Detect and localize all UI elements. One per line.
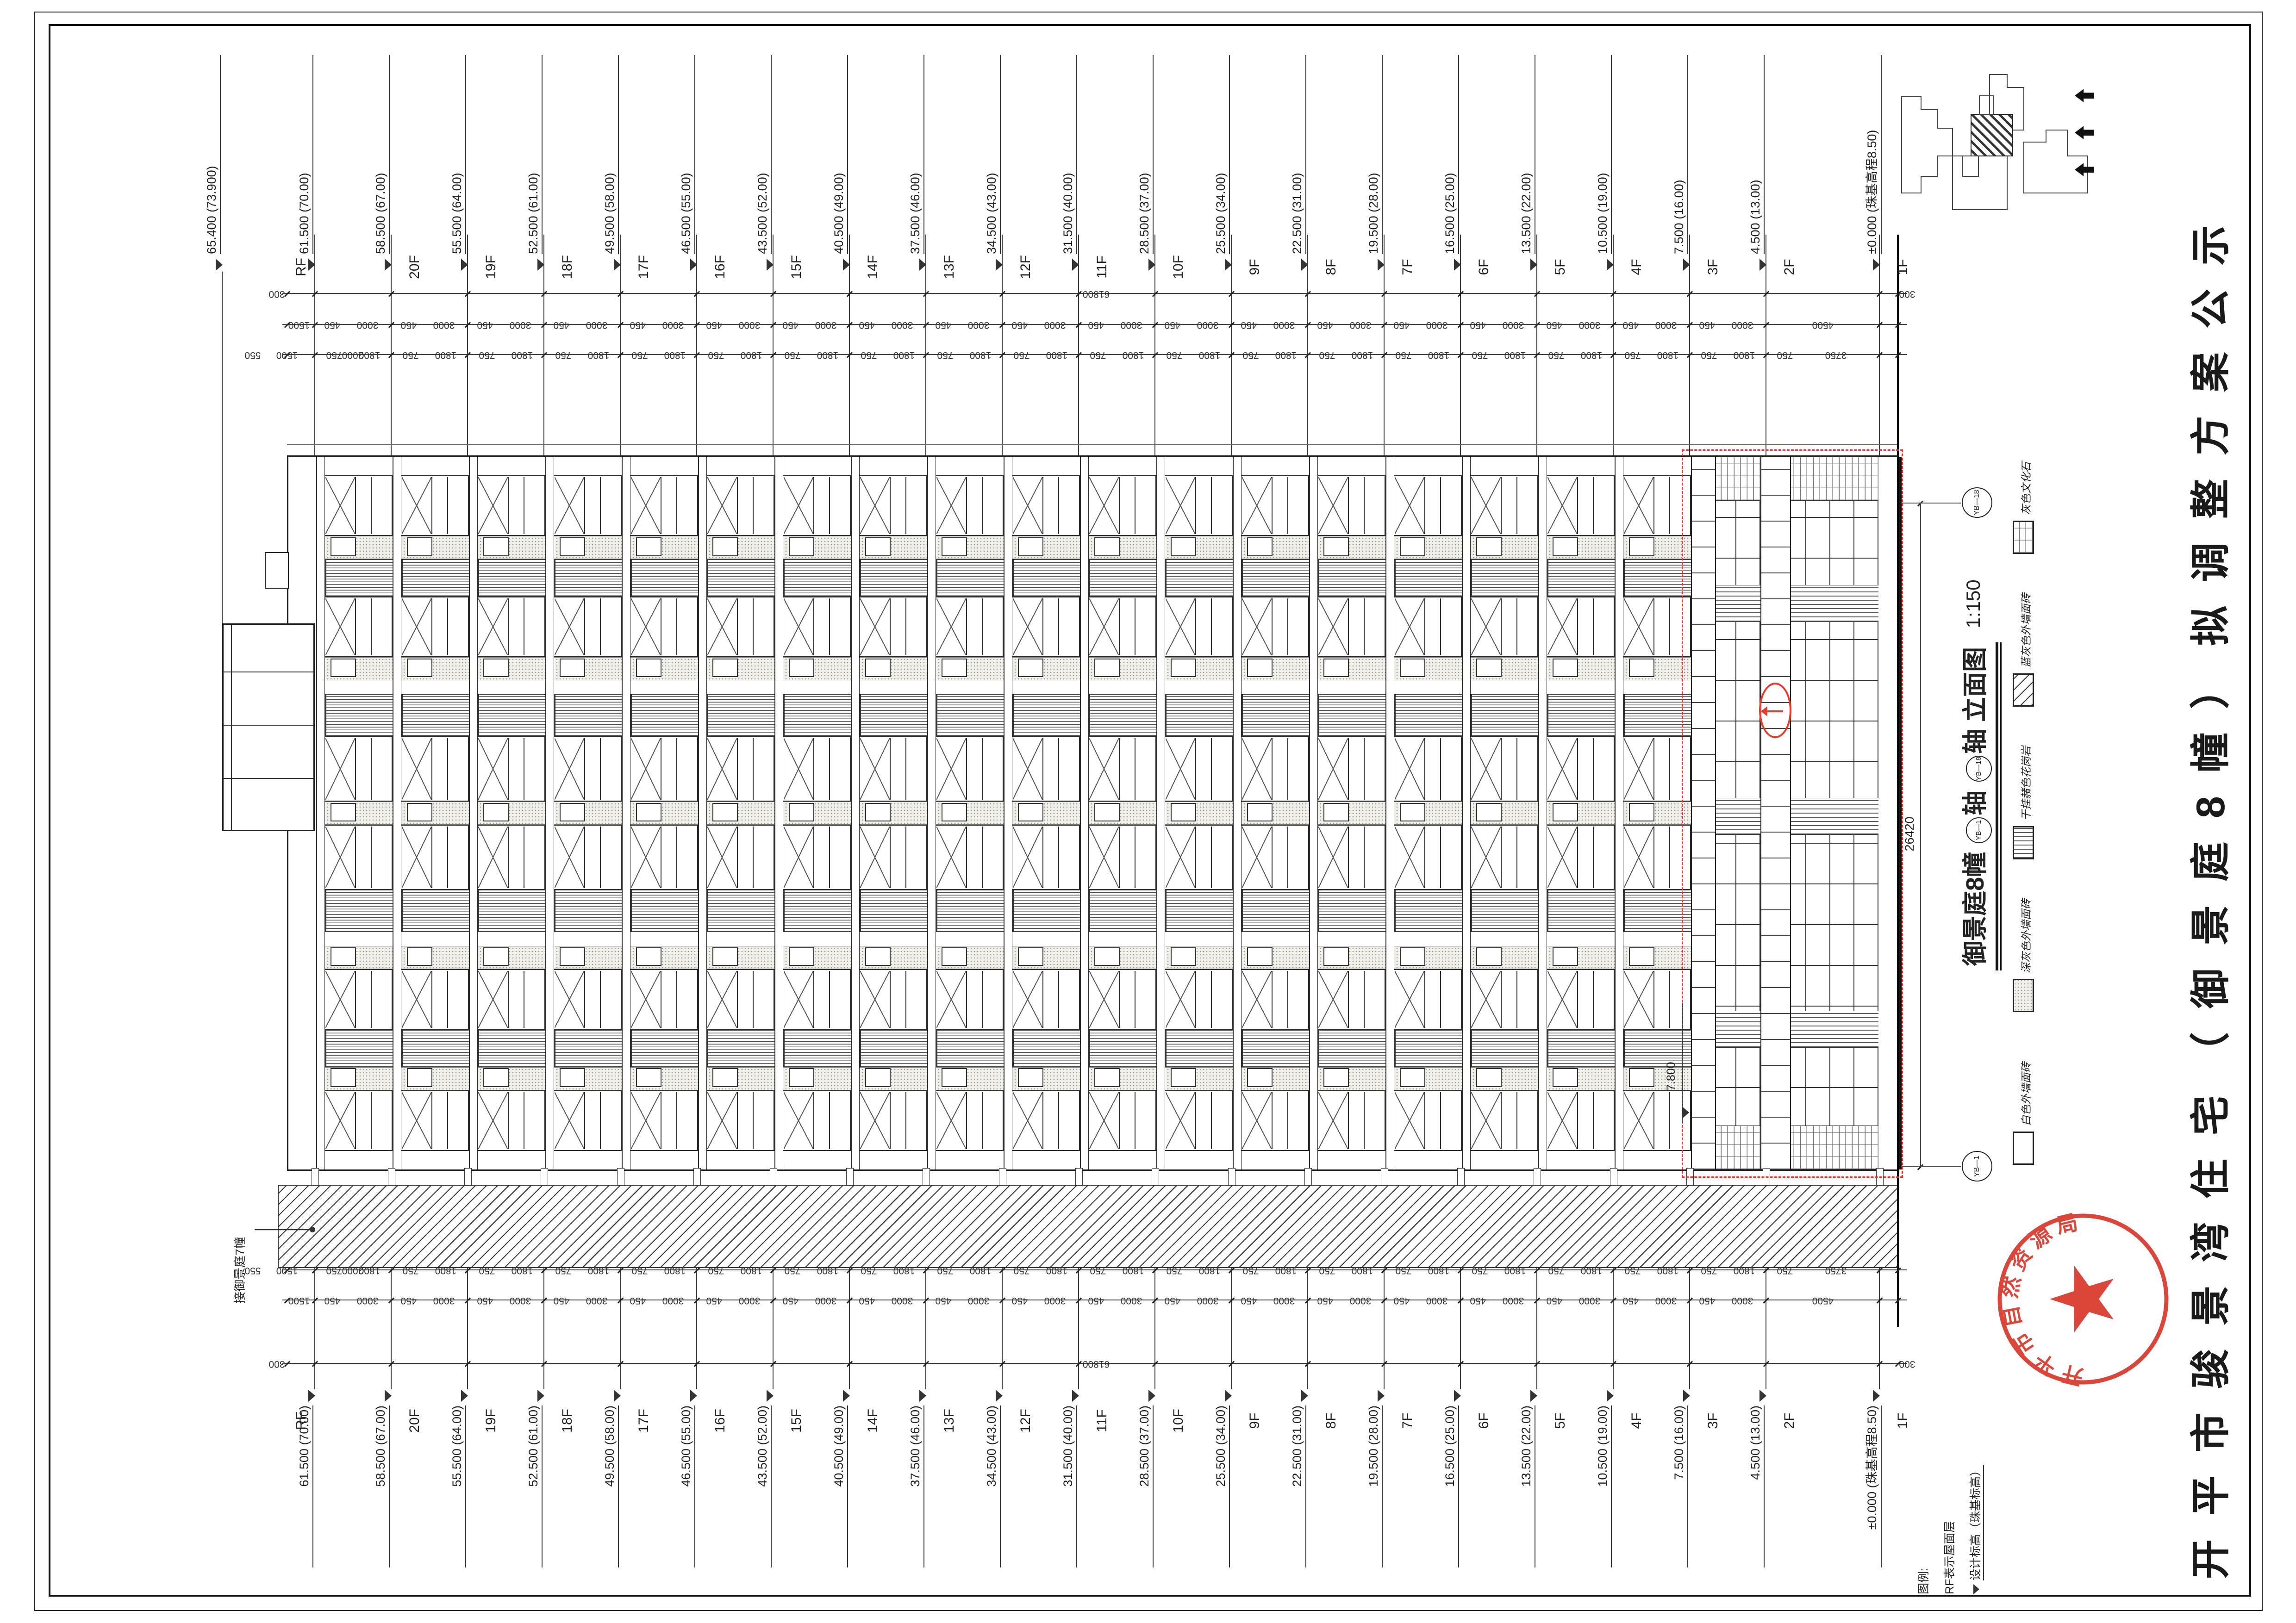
- dim-label: 450: [698, 319, 730, 330]
- elevation-flag: 34.500 (43.00): [985, 1405, 1001, 1567]
- balcony-rail: [476, 694, 545, 736]
- window-sash-x: [1089, 738, 1120, 800]
- floor-label: 14F: [865, 1400, 881, 1442]
- floor-strip: [1309, 457, 1385, 1169]
- dim-label: 3750: [1820, 349, 1852, 361]
- small-window: [789, 947, 814, 966]
- window: [629, 825, 698, 890]
- dim-label: 750: [1235, 1265, 1267, 1276]
- dim-label: 450: [469, 1295, 501, 1306]
- tile-pier: [629, 1067, 698, 1090]
- window-sash-x: [402, 971, 432, 1028]
- window-sash-x: [1013, 1092, 1043, 1149]
- window: [1164, 736, 1233, 802]
- dim-label: 1800: [735, 349, 767, 361]
- dim-label: 750: [1540, 1265, 1572, 1276]
- window: [1469, 1090, 1538, 1151]
- axis-circle-start: YB—1: [1966, 817, 1992, 843]
- level-triangle-icon: [216, 259, 223, 271]
- window: [1316, 475, 1385, 536]
- dim-label: 750: [700, 349, 732, 361]
- dim-label: 1800: [659, 349, 691, 361]
- scanned-drawing-page: 开平市骏景湾住宅（御景庭8幢）拟调整方案公示 61.500 (70.00)61.…: [0, 0, 2296, 1623]
- small-window: [1247, 1068, 1273, 1087]
- window: [1393, 1090, 1462, 1151]
- machine-level-line: [222, 272, 223, 623]
- small-window: [407, 947, 432, 966]
- window: [324, 969, 393, 1030]
- dim-label: 3000: [1268, 319, 1300, 330]
- adjacent-building-band: [278, 1185, 1898, 1268]
- wall: [1622, 1151, 1691, 1169]
- floor-label: 17F: [636, 1400, 652, 1442]
- window-mullion: [1440, 971, 1441, 1028]
- small-window: [1476, 947, 1502, 966]
- window-mullion: [753, 1092, 754, 1149]
- window-mullion: [1669, 827, 1670, 888]
- wall: [1546, 680, 1615, 694]
- dim-label: 1800: [582, 349, 615, 361]
- small-window: [1323, 537, 1349, 556]
- legend-label: 深灰色外墙面砖: [2017, 899, 2033, 973]
- small-window: [942, 947, 967, 966]
- window-sash-x: [1089, 827, 1120, 888]
- dim-label: 1800: [430, 1265, 462, 1276]
- window-sash-x: [707, 1092, 738, 1149]
- window-sash-x: [1166, 971, 1196, 1028]
- window-mullion: [524, 827, 524, 888]
- floor-strip: [1385, 457, 1462, 1169]
- wall: [1546, 1151, 1615, 1169]
- balcony-rail: [1087, 1030, 1156, 1067]
- floor-strip: [393, 457, 469, 1169]
- window-sash-x: [1624, 1092, 1654, 1149]
- window-sash-x: [555, 827, 585, 888]
- window-sash-x: [1318, 738, 1349, 800]
- tile-pier: [1393, 536, 1462, 559]
- window-sash-x: [1547, 1092, 1578, 1149]
- balcony-rail: [553, 559, 622, 597]
- small-window: [1018, 803, 1043, 822]
- tile-pier: [1393, 802, 1462, 825]
- podium-level-triangle-icon: [1682, 1107, 1689, 1119]
- window: [476, 1090, 545, 1151]
- floor-label: 13F: [942, 246, 957, 288]
- window: [705, 597, 774, 657]
- small-window: [483, 659, 509, 678]
- dim-label: 3000: [580, 319, 613, 330]
- window-sash-x: [478, 1092, 509, 1149]
- window-mullion: [1058, 971, 1059, 1028]
- window: [1469, 825, 1538, 890]
- window-sash-x: [402, 1092, 432, 1149]
- legend-label: 灰色文化石: [2017, 462, 2033, 515]
- wall: [1393, 932, 1462, 946]
- window: [476, 825, 545, 890]
- window: [705, 969, 774, 1030]
- dim-label: 3000: [962, 319, 995, 330]
- drawing-title-suffix: 立面图: [1961, 647, 1989, 722]
- wall: [1240, 680, 1309, 694]
- window: [553, 825, 622, 890]
- elevation-flag: 28.500 (37.00): [1137, 55, 1154, 254]
- dim-label: 3000: [1726, 319, 1759, 330]
- window-sash-x: [707, 971, 738, 1028]
- window-mullion: [1440, 477, 1441, 534]
- dim-label: 750: [700, 1265, 732, 1276]
- window-mullion: [753, 477, 754, 534]
- adjacent-leader-line: [241, 1183, 343, 1304]
- window-sash-x: [1089, 477, 1120, 534]
- tile-pier: [629, 657, 698, 680]
- dim-label: 450: [545, 1295, 578, 1306]
- window: [705, 736, 774, 802]
- balcony-rail: [1316, 1030, 1385, 1067]
- dim-label: 750: [394, 349, 427, 361]
- small-window: [407, 803, 432, 822]
- tile-pier: [935, 802, 1004, 825]
- window-sash-x: [631, 598, 661, 655]
- window-mullion: [905, 827, 906, 888]
- floor-label: 19F: [483, 1400, 499, 1442]
- window-mullion: [905, 738, 906, 800]
- elevation-flag: 52.500 (61.00): [526, 55, 543, 254]
- wall: [1469, 680, 1538, 694]
- window: [553, 1090, 622, 1151]
- window: [1622, 969, 1691, 1030]
- tile-pier: [782, 1067, 851, 1090]
- tile-pier: [705, 946, 774, 969]
- floor-strip: [1538, 457, 1615, 1169]
- wall: [858, 1151, 927, 1169]
- window-sash-x: [325, 827, 356, 888]
- small-window: [1018, 1068, 1043, 1087]
- dim-label: 750: [1311, 1265, 1343, 1276]
- window-sash-x: [1471, 1092, 1502, 1149]
- floor-strip: [1156, 457, 1233, 1169]
- axis-word: 轴: [1961, 729, 1989, 754]
- window-mullion: [1058, 598, 1059, 655]
- level-triangle-icon: [919, 1390, 926, 1402]
- small-window: [1629, 1068, 1654, 1087]
- dim-label: 3000: [1497, 319, 1529, 330]
- tile-pier: [476, 1067, 545, 1090]
- dim-label: 1800: [1728, 1265, 1760, 1276]
- window-mullion: [1440, 1092, 1441, 1149]
- small-window: [1323, 659, 1349, 678]
- axis-circle-end: YB—18: [1966, 756, 1992, 782]
- window-mullion: [600, 827, 601, 888]
- dim-label: 1800: [735, 1265, 767, 1276]
- dim-label: 3000: [1115, 319, 1148, 330]
- window: [1240, 969, 1309, 1030]
- window-sash-x: [1318, 1092, 1349, 1149]
- tile-pier: [400, 1067, 469, 1090]
- small-window: [483, 947, 509, 966]
- balcony-rail: [1393, 559, 1462, 597]
- window-mullion: [1135, 1092, 1136, 1149]
- window-sash-x: [860, 738, 891, 800]
- elevation-flag: 58.500 (67.00): [374, 55, 390, 254]
- small-window: [636, 947, 661, 966]
- floor-label: 18F: [560, 246, 575, 288]
- balcony-rail: [400, 694, 469, 736]
- tile-pier: [1164, 1067, 1233, 1090]
- window-sash-x: [478, 971, 509, 1028]
- tile-pier: [1393, 657, 1462, 680]
- dim-label: 3000: [733, 319, 766, 330]
- window: [629, 736, 698, 802]
- slab-connector: [1610, 1168, 1617, 1186]
- tile-pier: [1469, 802, 1538, 825]
- window-mullion: [447, 738, 448, 800]
- window: [782, 969, 851, 1030]
- wall: [324, 932, 393, 946]
- dim-label: 450: [1233, 319, 1265, 330]
- wall: [1393, 680, 1462, 694]
- window-mullion: [1211, 598, 1212, 655]
- window: [1087, 825, 1156, 890]
- adjustment-zone-box: [1682, 449, 1903, 1178]
- window-mullion: [1135, 827, 1136, 888]
- window-sash-x: [402, 738, 432, 800]
- window-mullion: [676, 1092, 677, 1149]
- small-window: [1476, 803, 1502, 822]
- small-window: [1629, 947, 1654, 966]
- tile-pier: [476, 536, 545, 559]
- window-sash-x: [936, 598, 967, 655]
- small-window: [1400, 1068, 1425, 1087]
- dim-label: 1800: [659, 1265, 691, 1276]
- floor-slab: [698, 457, 707, 1169]
- window: [1393, 475, 1462, 536]
- balcony-rail: [1469, 559, 1538, 597]
- axis-bubble-end: YB—18: [1962, 487, 1992, 518]
- drawing-title: 御景庭8幢 YB—1轴 YB—18轴 立面图 1:150: [1954, 579, 1998, 970]
- balcony-rail: [1546, 559, 1615, 597]
- wall: [1011, 680, 1080, 694]
- window-mullion: [600, 598, 601, 655]
- floor-label: 3F: [1705, 1400, 1721, 1442]
- dim-label: 450: [927, 1295, 960, 1306]
- small-window: [1171, 659, 1196, 678]
- level-triangle-icon: [767, 1390, 774, 1402]
- floor-label: 1F: [1895, 246, 1911, 288]
- window-mullion: [1058, 477, 1059, 534]
- window-mullion: [600, 1092, 601, 1149]
- small-window: [712, 659, 738, 678]
- small-window: [560, 659, 585, 678]
- tile-pier: [1316, 536, 1385, 559]
- tile-pier: [1011, 657, 1080, 680]
- small-window: [789, 659, 814, 678]
- window-mullion: [829, 738, 830, 800]
- balcony-rail: [782, 1030, 851, 1067]
- dim-label: 750: [471, 349, 503, 361]
- window-sash-x: [1318, 598, 1349, 655]
- dim-label: 750: [1082, 349, 1114, 361]
- window: [1087, 597, 1156, 657]
- podium-dim-line: [1920, 504, 1921, 1167]
- tile-pier: [1240, 657, 1309, 680]
- window-sash-x: [1013, 477, 1043, 534]
- small-window: [407, 1068, 432, 1087]
- wall: [400, 932, 469, 946]
- window-mullion: [1287, 1092, 1288, 1149]
- elevation-flag: 52.500 (61.00): [526, 1405, 543, 1567]
- window-sash-x: [1013, 827, 1043, 888]
- wall: [1622, 457, 1691, 475]
- window-sash-x: [784, 1092, 814, 1149]
- window-mullion: [982, 477, 983, 534]
- wall: [858, 680, 927, 694]
- dim-label: 750: [1311, 349, 1343, 361]
- window-mullion: [829, 827, 830, 888]
- window-mullion: [1287, 477, 1288, 534]
- window: [935, 969, 1004, 1030]
- small-window: [712, 947, 738, 966]
- elevation-flag: 40.500 (49.00): [832, 55, 848, 254]
- floor-label: 16F: [712, 1400, 728, 1442]
- wall: [705, 680, 774, 694]
- dim-label: 750: [853, 1265, 885, 1276]
- level-triangle-icon: [1759, 259, 1766, 271]
- window-mullion: [982, 827, 983, 888]
- floor-slab: [1309, 457, 1318, 1169]
- window-sash-x: [325, 477, 356, 534]
- level-triangle-icon: [1072, 259, 1079, 271]
- dim-label: 450: [1233, 1295, 1265, 1306]
- tile-pier: [476, 657, 545, 680]
- tile-pier: [858, 1067, 927, 1090]
- window-sash-x: [1624, 477, 1654, 534]
- dim-label: 750: [1693, 1265, 1725, 1276]
- window-mullion: [1211, 1092, 1212, 1149]
- floor-label: 12F: [1018, 246, 1034, 288]
- window-sash-x: [1166, 827, 1196, 888]
- level-triangle-icon: [1607, 259, 1614, 271]
- podium-level-line: [1682, 1003, 1683, 1123]
- tile-pier: [935, 1067, 1004, 1090]
- wall: [1546, 932, 1615, 946]
- small-window: [942, 537, 967, 556]
- tile-pier: [1546, 657, 1615, 680]
- slab-connector: [1075, 1168, 1083, 1186]
- level-triangle-icon: [537, 259, 544, 271]
- window-sash-x: [1318, 827, 1349, 888]
- dim-label: 550: [237, 349, 269, 361]
- window: [476, 475, 545, 536]
- slab-connector: [1381, 1168, 1388, 1186]
- level-triangle-icon: [690, 259, 697, 271]
- tile-pier: [400, 536, 469, 559]
- dim-label: 3000: [504, 319, 537, 330]
- dim-label: 3000: [428, 319, 460, 330]
- window-sash-x: [555, 598, 585, 655]
- level-note: 设计标高（珠基标高）: [1963, 1465, 1989, 1594]
- tile-pier: [1240, 946, 1309, 969]
- tile-pier: [1087, 1067, 1156, 1090]
- window-sash-x: [1166, 598, 1196, 655]
- balcony-rail: [1546, 1030, 1615, 1067]
- dim-label: 3000: [1039, 319, 1071, 330]
- small-window: [1400, 803, 1425, 822]
- tile-pier: [782, 946, 851, 969]
- window-sash-x: [1471, 738, 1502, 800]
- tile-pier: [935, 946, 1004, 969]
- tile-pier: [1011, 1067, 1080, 1090]
- level-triangle-icon: [308, 259, 315, 271]
- slab-connector: [923, 1168, 930, 1186]
- balcony-rail: [935, 890, 1004, 932]
- wall: [705, 932, 774, 946]
- floor-label: 8F: [1323, 1400, 1339, 1442]
- small-window: [1094, 947, 1120, 966]
- level-triangle-icon: [537, 1390, 544, 1402]
- balcony-rail: [1087, 694, 1156, 736]
- window: [1087, 969, 1156, 1030]
- floor-label: 2F: [1782, 246, 1797, 288]
- window: [705, 1090, 774, 1151]
- axis-bubble-start: YB—1: [1962, 1151, 1992, 1181]
- dim-label: 1800: [582, 1265, 615, 1276]
- window: [1240, 597, 1309, 657]
- floor-label: 3F: [1705, 246, 1721, 288]
- window-mullion: [600, 971, 601, 1028]
- tile-pier: [1469, 946, 1538, 969]
- window-mullion: [1516, 1092, 1517, 1149]
- window: [1546, 736, 1615, 802]
- dim-label: 750: [929, 1265, 961, 1276]
- floor-strip: [469, 457, 545, 1169]
- dim-label: 300: [261, 288, 293, 299]
- small-window: [1094, 659, 1120, 678]
- window-mullion: [447, 827, 448, 888]
- level-triangle-icon: [385, 259, 392, 271]
- balcony-rail: [1164, 1030, 1233, 1067]
- window: [935, 1090, 1004, 1151]
- small-window: [483, 1068, 509, 1087]
- dim-label: 1800: [811, 349, 844, 361]
- dim-label: 1500: [271, 349, 303, 361]
- window-sash-x: [325, 1092, 356, 1149]
- wall: [782, 680, 851, 694]
- window-mullion: [524, 971, 524, 1028]
- machine-room-mullion: [224, 725, 313, 726]
- notes-block: 图例: RF表示屋面层 设计标高（珠基标高）: [1911, 1465, 1989, 1594]
- level-triangle-icon: [614, 1390, 621, 1402]
- level-triangle-icon: [1530, 259, 1537, 271]
- small-window: [1400, 659, 1425, 678]
- dim-label: 300: [1891, 1358, 1923, 1369]
- dim-label: 3000: [1344, 319, 1377, 330]
- window: [1469, 597, 1538, 657]
- slab-connector: [999, 1168, 1006, 1186]
- small-window: [1553, 947, 1578, 966]
- balcony-rail: [324, 694, 393, 736]
- balcony-rail: [476, 1030, 545, 1067]
- window-mullion: [1440, 598, 1441, 655]
- wall: [553, 932, 622, 946]
- wall: [782, 932, 851, 946]
- slab-connector: [541, 1168, 548, 1186]
- level-triangle-icon: [1072, 1390, 1079, 1402]
- stamp-star-icon: [2050, 1266, 2114, 1332]
- small-window: [331, 1068, 356, 1087]
- window: [1469, 969, 1538, 1030]
- floor-label: 12F: [1018, 1400, 1034, 1442]
- dim-label: 1800: [506, 1265, 538, 1276]
